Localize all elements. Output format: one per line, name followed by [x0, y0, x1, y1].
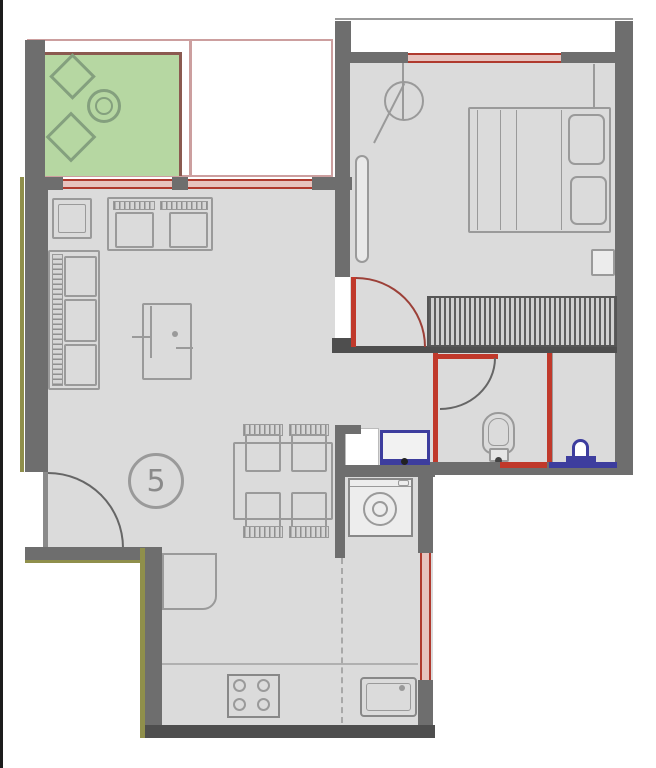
living-left-wall — [25, 177, 48, 472]
sofa-3-cushion — [64, 299, 97, 342]
bedroom-roof-line — [335, 18, 633, 20]
bed-fold-line — [516, 110, 517, 230]
bedroom-left-wall — [335, 63, 350, 277]
image-edge — [0, 0, 3, 768]
stove-burner — [233, 698, 246, 711]
laundry-right-wall — [418, 467, 433, 553]
bedroom-right-wall — [615, 63, 633, 475]
bathroom-divider-line — [552, 353, 553, 463]
terrace-divider-line — [189, 39, 192, 177]
wall-segment — [172, 177, 188, 190]
radiator — [355, 155, 369, 263]
bed-fold-line — [500, 110, 501, 230]
unit-number-badge: 5 — [128, 453, 184, 509]
bedroom-corner-column — [615, 21, 633, 63]
hall-wall — [335, 425, 345, 558]
toilet-bowl-inner — [488, 418, 509, 446]
kitchen-right-wall — [418, 680, 433, 725]
ceiling-lamp-icon — [384, 81, 424, 121]
lamp-stem-line — [402, 63, 404, 120]
garden-table-inner — [95, 97, 113, 115]
side-table-inner — [58, 204, 86, 233]
bedroom-corner-column — [335, 21, 351, 63]
living-window — [188, 179, 312, 189]
stove-burner — [233, 679, 246, 692]
kitchen-table — [162, 553, 217, 610]
balcony-left-wall — [25, 40, 45, 177]
kitchen-left-wall — [145, 548, 162, 738]
washing-machine-drum-inner — [372, 501, 388, 517]
dining-chair — [289, 526, 329, 538]
bathroom-bottom-wall-blue — [549, 462, 617, 468]
shelf-line — [593, 64, 595, 109]
washbasin-drain-dot — [401, 458, 408, 465]
sofa-2-cushion — [115, 212, 154, 248]
sofa-2-backrest — [113, 201, 155, 210]
bathroom-bottom-wall-red — [500, 462, 547, 468]
zone-dashed-line — [341, 558, 343, 723]
stove-burner — [257, 698, 270, 711]
stove-burner — [257, 679, 270, 692]
unit-number: 5 — [146, 464, 165, 499]
bed-head-line — [561, 110, 562, 230]
exterior-accent-line — [20, 177, 24, 472]
kitchen-window — [420, 553, 431, 680]
tv-cable-line — [176, 347, 193, 349]
bedroom-bottom-wall — [332, 346, 617, 353]
dining-table — [233, 442, 333, 520]
bedroom-window — [408, 53, 561, 63]
tv-dot — [172, 331, 178, 337]
pillow — [570, 176, 607, 225]
exterior-accent-line — [25, 560, 143, 563]
floor-plan: 5 — [0, 0, 656, 768]
pillow — [568, 114, 605, 165]
bedroom-top-wall — [350, 52, 408, 63]
bed-fold-line — [477, 110, 478, 230]
kitchen-bottom-wall — [145, 725, 435, 738]
living-window — [63, 179, 172, 189]
sofa-2-cushion — [169, 212, 208, 248]
tv-screen-line — [150, 306, 152, 358]
sofa-3-cushion — [64, 344, 97, 386]
bedroom-top-wall — [561, 52, 615, 63]
sofa-3-cushion — [64, 256, 97, 297]
bathroom-left-wall — [433, 353, 438, 467]
sofa-2-backrest — [160, 201, 208, 210]
wardrobe — [427, 296, 617, 347]
washing-machine-panel-line — [350, 486, 411, 487]
nightstand — [591, 249, 615, 276]
sink-faucet-dot — [399, 685, 405, 691]
washing-machine-knob — [398, 480, 409, 486]
kitchen-counter-line — [162, 663, 418, 665]
dining-chair — [243, 526, 283, 538]
sofa-3-backrest — [52, 254, 63, 386]
tv-tick-line — [132, 336, 150, 338]
